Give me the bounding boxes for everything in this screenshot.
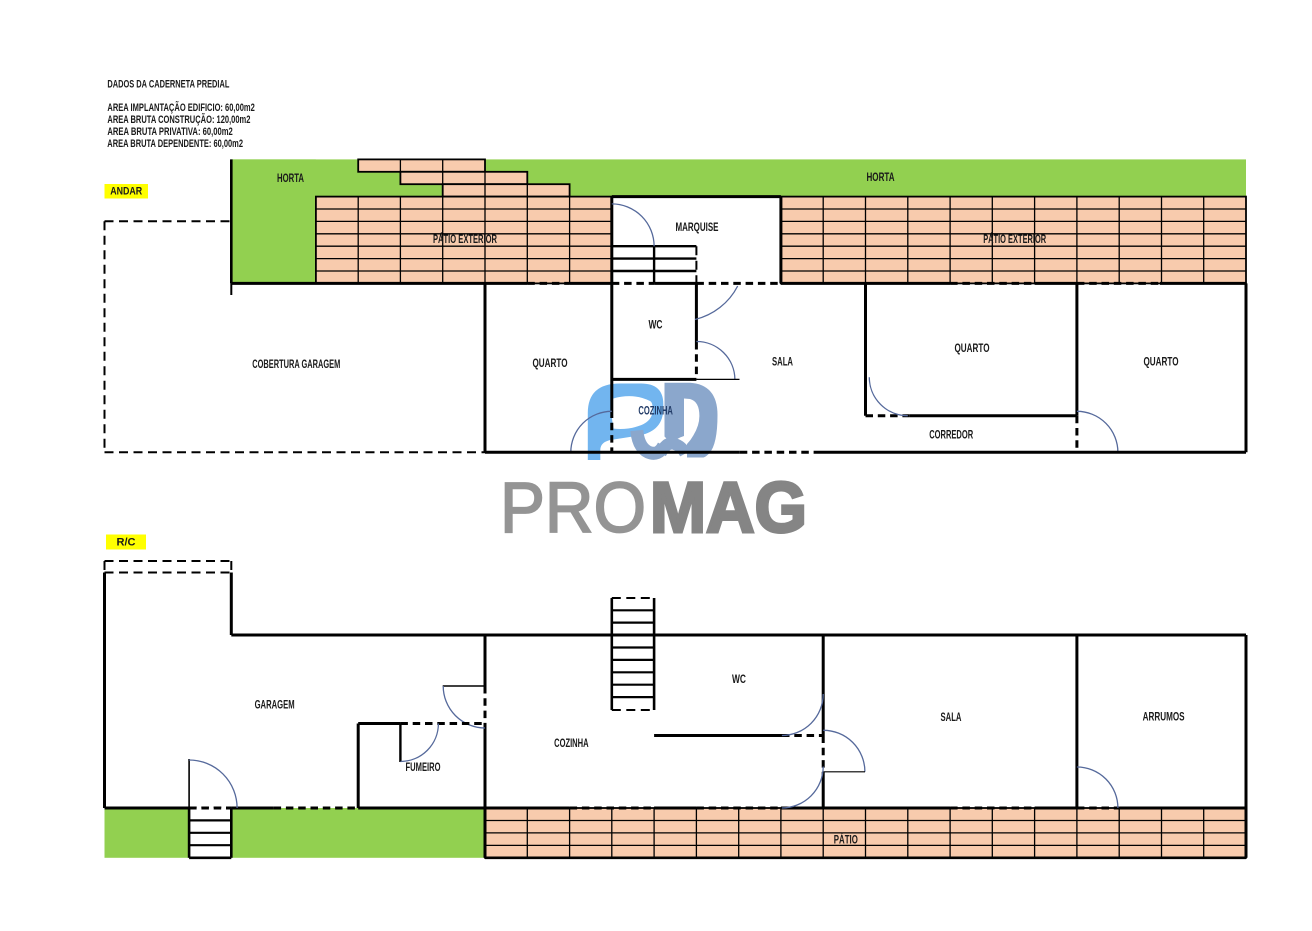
svg-text:AREA BRUTA DEPENDENTE: 60,00m2: AREA BRUTA DEPENDENTE: 60,00m2: [107, 138, 243, 150]
svg-text:SALA: SALA: [941, 712, 962, 724]
svg-text:COBERTURA GARAGEM: COBERTURA GARAGEM: [252, 359, 340, 371]
svg-text:QUARTO: QUARTO: [1144, 357, 1179, 369]
svg-text:PRO: PRO: [500, 469, 646, 548]
svg-text:SALA: SALA: [772, 357, 793, 369]
svg-text:WC: WC: [732, 674, 746, 686]
svg-text:AREA BRUTA CONSTRUÇÃO: 120,00m: AREA BRUTA CONSTRUÇÃO: 120,00m2: [107, 113, 250, 126]
svg-text:QUARTO: QUARTO: [955, 343, 990, 355]
svg-text:GARAGEM: GARAGEM: [255, 700, 295, 712]
svg-text:PÁTIO: PÁTIO: [834, 833, 858, 846]
svg-text:PÁTIO EXTERIOR: PÁTIO EXTERIOR: [433, 233, 497, 246]
svg-text:DADOS DA CADERNETA PREDIAL: DADOS DA CADERNETA PREDIAL: [107, 79, 229, 91]
svg-text:R/C: R/C: [117, 537, 136, 549]
svg-text:HORTA: HORTA: [277, 173, 304, 185]
svg-text:CORREDOR: CORREDOR: [929, 429, 973, 441]
svg-text:COZINHA: COZINHA: [638, 406, 673, 418]
svg-text:AREA IMPLANTAÇÃO EDIFICIO: 60,: AREA IMPLANTAÇÃO EDIFICIO: 60,00m2: [107, 101, 254, 114]
svg-text:ARRUMOS: ARRUMOS: [1143, 712, 1185, 724]
svg-text:FUMEIRO: FUMEIRO: [406, 762, 441, 774]
svg-text:PÁTIO EXTERIOR: PÁTIO EXTERIOR: [983, 233, 1046, 246]
svg-text:MAG: MAG: [650, 469, 807, 548]
svg-text:AREA BRUTA PRIVATIVA: 60,00m2: AREA BRUTA PRIVATIVA: 60,00m2: [107, 126, 232, 138]
svg-text:COZINHA: COZINHA: [554, 738, 589, 750]
svg-text:ANDAR: ANDAR: [110, 186, 142, 198]
svg-text:HORTA: HORTA: [867, 172, 895, 184]
svg-text:QUARTO: QUARTO: [533, 358, 568, 370]
svg-text:MARQUISE: MARQUISE: [676, 222, 719, 234]
svg-text:WC: WC: [649, 320, 663, 332]
